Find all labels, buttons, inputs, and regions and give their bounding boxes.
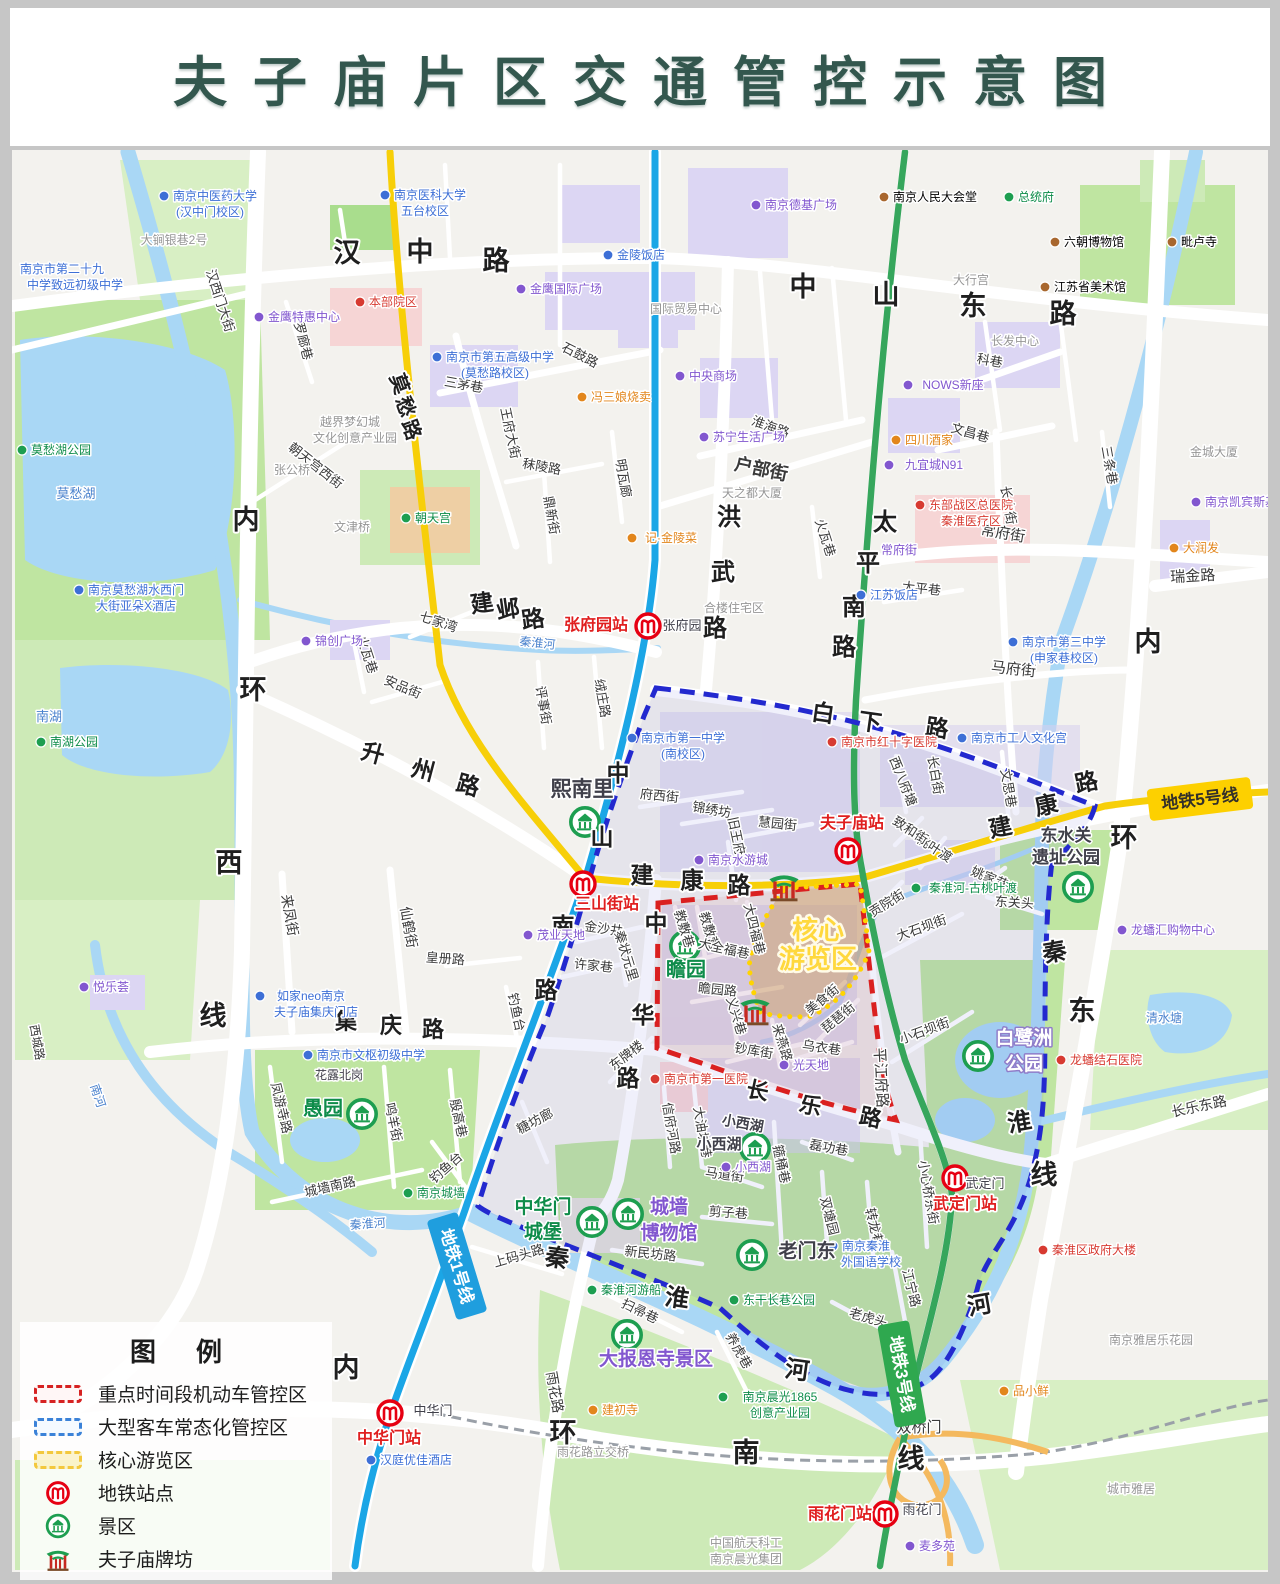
map-label: 朝天宫 bbox=[415, 510, 451, 525]
map-label: 国际贸易中心 bbox=[650, 301, 722, 316]
map-label: 南京市第二十九 bbox=[20, 261, 104, 276]
map-label: 大锏银巷2号 bbox=[141, 233, 208, 247]
map-label: 夫子庙站 bbox=[820, 813, 884, 832]
poi-marker-icon bbox=[603, 250, 613, 260]
legend-item-label: 地铁站点 bbox=[98, 1479, 174, 1506]
map-label: 文津桥 bbox=[334, 519, 370, 534]
metro-station-icon bbox=[943, 1166, 967, 1190]
map-label: 南京雅居乐花园 bbox=[1109, 1332, 1193, 1347]
map-label: 南京市文枢初级中学 bbox=[317, 1047, 425, 1062]
map-label: 剪子巷 bbox=[708, 1204, 748, 1222]
poi-marker-icon bbox=[999, 1386, 1009, 1396]
scenic-area-icon bbox=[964, 1042, 992, 1070]
map-label: 创意产业园 bbox=[750, 1405, 810, 1420]
map-label: 雨花门站 bbox=[808, 1504, 872, 1523]
map-label: 秦淮医疗区 bbox=[941, 514, 1001, 528]
poi-marker-icon bbox=[401, 513, 411, 523]
poi-marker-icon bbox=[355, 297, 365, 307]
map-label: 三山街站 bbox=[575, 894, 639, 913]
map-label: 常府街 bbox=[881, 542, 917, 557]
map-label: 长发中心 bbox=[991, 333, 1039, 348]
poi-marker-icon bbox=[1038, 1245, 1048, 1255]
map-label: 南京市第五高级中学 bbox=[446, 349, 554, 364]
map-label: 城墙 bbox=[650, 1195, 688, 1218]
poi-marker-icon bbox=[516, 284, 526, 294]
map-label: 张公桥 bbox=[274, 463, 310, 477]
map-label: 山 bbox=[591, 824, 614, 850]
scenic-area-icon bbox=[34, 1517, 82, 1535]
poi-marker-icon bbox=[627, 533, 637, 543]
scenic-area-icon bbox=[348, 1100, 376, 1128]
map-label: 金城大厦 bbox=[1190, 444, 1238, 459]
map-label: 南湖 bbox=[36, 709, 62, 724]
map-label: 皇册路 bbox=[425, 950, 465, 968]
poi-marker-icon bbox=[729, 1295, 739, 1305]
poi-marker-icon bbox=[159, 191, 169, 201]
scenic-area-icon bbox=[578, 1208, 606, 1236]
poi-marker-icon bbox=[301, 636, 311, 646]
map-label: 东水关 bbox=[1041, 825, 1092, 845]
legend-item-4: 景区 bbox=[20, 1509, 332, 1542]
poi-marker-icon bbox=[79, 982, 89, 992]
map-label: 外国语学校 bbox=[841, 1254, 901, 1269]
legend-item-2: 核心游览区 bbox=[20, 1443, 332, 1476]
poi-marker-icon bbox=[1117, 925, 1127, 935]
map-label: 小西湖 bbox=[696, 1136, 741, 1153]
poi-marker-icon bbox=[957, 733, 967, 743]
map-label: 瑞金路 bbox=[1170, 567, 1216, 586]
map-label: 瞻园 bbox=[666, 957, 706, 981]
map-label: 路 bbox=[520, 604, 547, 633]
map-label: 洪 bbox=[717, 504, 741, 531]
map-label: 中华门站 bbox=[357, 1428, 421, 1447]
map-label: 中华门 bbox=[514, 1195, 571, 1218]
map-label: 南京医科大学 bbox=[394, 187, 466, 202]
map-label: 如家neo南京 bbox=[277, 988, 345, 1003]
map-label: 南京中医药大学 bbox=[173, 188, 257, 203]
archway-icon bbox=[34, 1550, 82, 1568]
map-label: 路 bbox=[422, 1017, 445, 1042]
map-label: 毗卢寺 bbox=[1181, 234, 1217, 249]
poi-marker-icon bbox=[911, 883, 921, 893]
legend-rows: 重点时间段机动车管控区大型客车常态化管控区核心游览区地铁站点景区夫子庙牌坊 bbox=[20, 1377, 332, 1575]
poi-marker-icon bbox=[588, 1405, 598, 1415]
map-label: 路 bbox=[832, 633, 857, 661]
map-label: 大街亚朵X酒店 bbox=[96, 599, 176, 613]
map-label: 锦创广场 bbox=[315, 634, 363, 648]
poi-marker-icon bbox=[879, 192, 889, 202]
map-label: 总统府 bbox=[1018, 189, 1054, 204]
poi-marker-icon bbox=[1040, 282, 1050, 292]
map-label: 线 bbox=[200, 1001, 227, 1031]
page-title: 夫子庙片区交通管控示意图 bbox=[147, 38, 1133, 117]
map-label: 金鹰国际广场 bbox=[530, 281, 602, 296]
legend-item-label: 核心游览区 bbox=[98, 1446, 193, 1473]
map-label: 南京莫愁湖水西门 bbox=[88, 582, 184, 597]
map-label: 清水塘 bbox=[1146, 1010, 1182, 1025]
map-label: 四川酒家 bbox=[905, 432, 953, 447]
map-label: 夫子庙集庆门店 bbox=[274, 1004, 358, 1019]
map-label: 茂业天地 bbox=[537, 928, 585, 942]
map-label: 南京德基广场 bbox=[765, 197, 837, 212]
map-label: 内 bbox=[1135, 627, 1162, 657]
map-label: 白 bbox=[810, 699, 836, 728]
map-label: 建初寺 bbox=[602, 1403, 638, 1417]
map-label: 山 bbox=[873, 280, 900, 310]
map-label: 淮 bbox=[663, 1284, 691, 1314]
map-label: 下 bbox=[857, 708, 883, 737]
map-label: 路 bbox=[483, 245, 511, 276]
yellow-dash-swatch bbox=[34, 1451, 82, 1469]
map-label: 平江府路 bbox=[870, 1047, 890, 1108]
poi-marker-icon bbox=[905, 1541, 915, 1551]
map-label: 秦淮河-古桃叶渡 bbox=[929, 880, 1017, 895]
map-label: 张府园站 bbox=[564, 615, 628, 634]
map-label: 六朝博物馆 bbox=[1064, 234, 1124, 249]
poi-marker-icon bbox=[432, 352, 442, 362]
map-label: 中 bbox=[407, 237, 434, 267]
map-label: (南校区) bbox=[661, 746, 705, 761]
map-label: 莫愁湖 bbox=[56, 486, 95, 501]
map-label: 武定门站 bbox=[933, 1194, 997, 1213]
map-label: 莫愁湖公园 bbox=[31, 442, 91, 457]
map-label: 东部战区总医院 bbox=[929, 497, 1013, 512]
map-label: 龙蟠汇购物中心 bbox=[1131, 922, 1215, 937]
map-label: 博物馆 bbox=[640, 1221, 697, 1244]
map-label: 武定门 bbox=[965, 1176, 1004, 1191]
map-label: 河 bbox=[966, 1290, 994, 1321]
map-label: 五台校区 bbox=[401, 203, 449, 218]
map-label: 南京市第一中学 bbox=[641, 730, 725, 745]
map-label: 文化创意产业园 bbox=[313, 430, 397, 445]
map-label: 庆 bbox=[380, 1013, 402, 1038]
poi-marker-icon bbox=[699, 432, 709, 442]
map-label: 东 bbox=[960, 290, 987, 321]
map-label: 华 bbox=[632, 1002, 655, 1028]
legend-item-label: 大型客车常态化管控区 bbox=[98, 1413, 288, 1440]
map-label: 秦淮河游船 bbox=[601, 1283, 661, 1297]
map-label: 麦多苑 bbox=[919, 1539, 955, 1553]
poi-marker-icon bbox=[779, 1060, 789, 1070]
map-label: 公园 bbox=[1005, 1053, 1043, 1075]
map-label: 中央商场 bbox=[689, 368, 737, 383]
map-label: 路 bbox=[1050, 298, 1078, 329]
poi-marker-icon bbox=[1169, 543, 1179, 553]
map-label: 南京晨光1865 bbox=[743, 1389, 818, 1404]
blue-dash-swatch bbox=[34, 1418, 82, 1436]
poi-marker-icon bbox=[694, 855, 704, 865]
map-label: 张府园 bbox=[662, 618, 701, 633]
map-label: 平 bbox=[856, 550, 880, 577]
map-label: 花露北岗 bbox=[315, 1067, 363, 1082]
map-label: 记·金陵菜 bbox=[645, 530, 697, 545]
map-label: 内 bbox=[233, 505, 260, 535]
metro-station-icon bbox=[34, 1484, 82, 1502]
poi-marker-icon bbox=[17, 445, 27, 455]
map-label: 建 bbox=[469, 589, 495, 618]
map-label: 线 bbox=[898, 1444, 925, 1474]
scenic-area-icon bbox=[1064, 873, 1092, 901]
poi-marker-icon bbox=[1008, 637, 1018, 647]
map-label: 南京人民大会堂 bbox=[893, 189, 977, 204]
map-label: 秦淮河 bbox=[349, 1216, 386, 1232]
map-label: 白鹭洲 bbox=[995, 1026, 1052, 1049]
poi-marker-icon bbox=[915, 500, 925, 510]
map-label: 大润发 bbox=[1183, 540, 1219, 555]
page-frame: 夫子庙片区交通管控示意图 bbox=[0, 0, 1280, 1584]
map-label: 大报恩寺景区 bbox=[599, 1347, 713, 1370]
legend-item-3: 地铁站点 bbox=[20, 1476, 332, 1509]
map-label: 汉庭优佳酒店 bbox=[380, 1452, 452, 1467]
map-label: 武 bbox=[711, 559, 735, 586]
map-label: 东关头 bbox=[994, 894, 1034, 912]
map-label: 南京市工人文化宫 bbox=[971, 730, 1067, 745]
map-label: 雨花路立交桥 bbox=[557, 1444, 629, 1459]
map-label: 小西湖 bbox=[735, 1159, 771, 1174]
map-label: (汉中门校区) bbox=[176, 204, 244, 219]
map-label: 城市雅居 bbox=[1107, 1481, 1155, 1496]
map-label: 环 bbox=[1111, 823, 1138, 853]
poi-marker-icon bbox=[627, 733, 637, 743]
poi-marker-icon bbox=[254, 312, 264, 322]
poi-marker-icon bbox=[751, 200, 761, 210]
scenic-area-icon bbox=[613, 1321, 641, 1349]
map-label: 合楼住宅区 bbox=[704, 600, 764, 615]
legend-item-label: 景区 bbox=[98, 1512, 136, 1539]
map-label: 线 bbox=[1031, 1160, 1058, 1190]
poi-marker-icon bbox=[403, 1188, 413, 1198]
map-label: (莫愁路校区) bbox=[461, 365, 529, 380]
poi-marker-icon bbox=[380, 190, 390, 200]
map-label: 江苏饭店 bbox=[870, 588, 918, 602]
map-label: 游览区 bbox=[779, 944, 857, 974]
map-label: 河 bbox=[783, 1356, 811, 1386]
legend-title: 图例 bbox=[20, 1332, 332, 1369]
map-label: 城堡 bbox=[524, 1220, 562, 1243]
map-label: 中 bbox=[645, 910, 668, 936]
red-dash-swatch bbox=[34, 1385, 82, 1403]
map-label: 东 bbox=[1069, 995, 1096, 1026]
map-label: 秦 bbox=[542, 1243, 572, 1273]
metro-station-icon bbox=[636, 614, 660, 638]
map-label: 路 bbox=[728, 872, 752, 898]
map-label: 路 bbox=[703, 614, 728, 642]
poi-marker-icon bbox=[1167, 237, 1177, 247]
map-label: 南京市第三中学 bbox=[1022, 634, 1106, 649]
map-label: NOWS新座 bbox=[922, 377, 983, 392]
map-label: 南京市第一医院 bbox=[664, 1071, 748, 1086]
poi-marker-icon bbox=[1050, 237, 1060, 247]
poi-marker-icon bbox=[903, 380, 913, 390]
metro-station-icon bbox=[571, 872, 595, 896]
map-label: 康 bbox=[681, 867, 705, 893]
legend-panel: 图例 重点时间段机动车管控区大型客车常态化管控区核心游览区地铁站点景区夫子庙牌坊 bbox=[20, 1322, 332, 1580]
poi-marker-icon bbox=[721, 1162, 731, 1172]
poi-marker-icon bbox=[587, 1285, 597, 1295]
poi-marker-icon bbox=[36, 737, 46, 747]
poi-marker-icon bbox=[1056, 1055, 1066, 1065]
poi-marker-icon bbox=[1004, 192, 1014, 202]
map-label: 江苏省美术馆 bbox=[1054, 279, 1126, 294]
map-label: 中华门 bbox=[413, 1403, 452, 1418]
map-label: 九宜城N91 bbox=[905, 457, 963, 472]
map-label: 环 bbox=[240, 675, 267, 705]
poi-marker-icon bbox=[74, 585, 84, 595]
map-label: 内 bbox=[333, 1353, 360, 1383]
poi-marker-icon bbox=[884, 460, 894, 470]
legend-item-label: 夫子庙牌坊 bbox=[98, 1545, 193, 1572]
poi-marker-icon bbox=[650, 1074, 660, 1084]
poi-marker-icon bbox=[856, 590, 866, 600]
map-label: 南京凯宾斯基 bbox=[1205, 494, 1268, 509]
scenic-area-icon bbox=[614, 1200, 642, 1228]
map-label: 中 bbox=[790, 272, 817, 302]
map-label: 西 bbox=[216, 848, 243, 878]
map-label: 老门东 bbox=[778, 1239, 835, 1262]
map-label: (申家巷校区) bbox=[1030, 650, 1098, 665]
map-label: 冯三娘烧卖 bbox=[591, 389, 651, 404]
map-label: 汉 bbox=[334, 238, 362, 268]
map-label: 中国航天科工 bbox=[710, 1535, 782, 1550]
map-label: 南京水游城 bbox=[708, 852, 768, 867]
map-label: 雨花门 bbox=[902, 1502, 941, 1517]
map-label: 本部院区 bbox=[369, 294, 417, 309]
map-label: 东干长巷公园 bbox=[743, 1293, 815, 1307]
map-label: 邺 bbox=[495, 595, 521, 624]
map-label: 越界梦幻城 bbox=[320, 415, 380, 429]
legend-item-0: 重点时间段机动车管控区 bbox=[20, 1377, 332, 1410]
metro-station-icon bbox=[836, 839, 860, 863]
map-area: 汉中路中山东路内环西线内环东线内环南线秦淮河秦淮河洪武路太平南路中山南路中华路建… bbox=[12, 150, 1268, 1572]
map-label: 光天地 bbox=[793, 1058, 829, 1072]
map-label: 品小鲜 bbox=[1013, 1384, 1049, 1398]
map-label: 路 bbox=[535, 977, 559, 1003]
map-label: 金鹰特惠中心 bbox=[268, 309, 340, 324]
map-label: 南京晨光集团 bbox=[710, 1551, 782, 1566]
map-label: 熙南里 bbox=[551, 777, 614, 801]
poi-marker-icon bbox=[255, 991, 265, 1001]
map-label: 南京市红十字医院 bbox=[841, 734, 937, 749]
map-label: 建 bbox=[631, 862, 654, 888]
map-label: 环 bbox=[550, 1418, 577, 1448]
map-label: 南京城墙 bbox=[417, 1185, 465, 1200]
map-label: 南京秦淮 bbox=[842, 1238, 890, 1253]
map-label: 金陵饭店 bbox=[617, 247, 665, 262]
map-label: 淮 bbox=[1006, 1107, 1034, 1138]
poi-marker-icon bbox=[827, 737, 837, 747]
poi-marker-icon bbox=[303, 1050, 313, 1060]
poi-marker-icon bbox=[675, 371, 685, 381]
poi-marker-icon bbox=[523, 930, 533, 940]
map-label: 悦乐荟 bbox=[93, 980, 129, 994]
map-label: 南 bbox=[733, 1438, 760, 1468]
legend-item-1: 大型客车常态化管控区 bbox=[20, 1410, 332, 1443]
scenic-area-icon bbox=[741, 1134, 769, 1162]
map-label: 大行宫 bbox=[953, 272, 989, 287]
title-band: 夫子庙片区交通管控示意图 bbox=[10, 8, 1270, 146]
poi-marker-icon bbox=[891, 435, 901, 445]
scenic-area-icon bbox=[738, 1241, 766, 1269]
map-label: 苏宁生活广场 bbox=[713, 429, 785, 444]
map-label: 南湖公园 bbox=[50, 734, 98, 749]
legend-item-label: 重点时间段机动车管控区 bbox=[98, 1380, 307, 1407]
map-label: 天之都大厦 bbox=[722, 486, 782, 500]
legend-item-5: 夫子庙牌坊 bbox=[20, 1542, 332, 1575]
map-label: 龙蟠结石医院 bbox=[1070, 1053, 1142, 1067]
poi-marker-icon bbox=[718, 1392, 728, 1402]
map-label: 秦淮区政府大楼 bbox=[1052, 1242, 1136, 1257]
map-label: 愚园 bbox=[303, 1097, 343, 1120]
map-label: 遗址公园 bbox=[1031, 847, 1100, 867]
map-label: 核心 bbox=[792, 915, 844, 945]
map-label: 中学致远初级中学 bbox=[27, 277, 123, 292]
map-label: 太 bbox=[873, 509, 898, 536]
metro-station-icon bbox=[378, 1401, 402, 1425]
poi-marker-icon bbox=[577, 392, 587, 402]
poi-marker-icon bbox=[1191, 497, 1201, 507]
metro-station-icon bbox=[873, 1502, 897, 1526]
poi-marker-icon bbox=[366, 1455, 376, 1465]
